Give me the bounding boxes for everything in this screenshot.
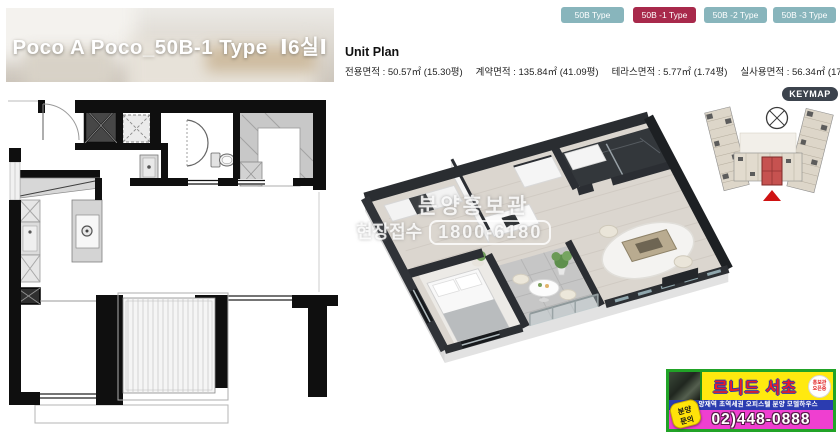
location-marker-icon xyxy=(763,190,781,201)
unit-highlight xyxy=(762,157,782,185)
terrace-deck xyxy=(118,293,228,400)
watermark-line1: 분양홍보관 xyxy=(418,190,530,220)
ad-banner[interactable]: 르니드 서초 홍보관 오픈중 서초 양재역 초역세권 오피스텔 분양 모델하우스… xyxy=(666,369,836,432)
elevator xyxy=(85,108,117,143)
area-actual: 실사용면적 : 56.34㎡ (17.04평) xyxy=(740,67,840,78)
ad-open-badge-line2: 오픈중 xyxy=(813,386,827,392)
ad-building-photo xyxy=(669,372,702,400)
lower-terrace-outline xyxy=(35,405,228,423)
unit-plan-areas: 전용면적 : 50.57㎡ (15.30평)계약면적 : 135.84㎡ (41… xyxy=(345,64,839,78)
ad-title: 르니드 서초 xyxy=(702,374,808,398)
floor-plan-2d xyxy=(5,92,339,428)
title-banner: Poco A Poco_50B-1 Type Ⅰ6실Ⅰ xyxy=(6,8,334,82)
shower-tray xyxy=(123,115,150,142)
kitchen xyxy=(10,162,102,304)
floor-plan-3d xyxy=(340,98,752,400)
tab-50b-3-type[interactable]: 50B -3 Type xyxy=(773,7,836,23)
watermark-line2: 현장접수1800-6180 xyxy=(356,218,551,245)
compass-icon xyxy=(767,108,788,129)
unit-plan-heading: Unit Plan xyxy=(345,45,399,59)
page-title: Poco A Poco_50B-1 Type Ⅰ6실Ⅰ xyxy=(6,30,334,60)
watermark-reception: 현장접수 xyxy=(356,222,422,242)
walkin-closet xyxy=(240,113,313,186)
area-exclusive: 전용면적 : 50.57㎡ (15.30평) xyxy=(345,67,463,78)
tab-50b-type[interactable]: 50B Type xyxy=(561,7,624,23)
ad-open-badge: 홍보관 오픈중 xyxy=(808,375,831,398)
ad-top-row: 르니드 서초 홍보관 오픈중 xyxy=(669,372,833,400)
watermark-phone: 1800-6180 xyxy=(429,220,551,245)
area-contract: 계약면적 : 135.84㎡ (41.09평) xyxy=(476,67,599,78)
tab-50b-2-type[interactable]: 50B -2 Type xyxy=(704,7,767,23)
area-terrace: 테라스면적 : 5.77㎡ (1.74평) xyxy=(612,67,728,78)
ad-phone-number: 02)448-0888 xyxy=(692,410,811,429)
entry-door xyxy=(43,104,79,140)
tab-50b-1-type[interactable]: 50B -1 Type xyxy=(633,7,696,23)
